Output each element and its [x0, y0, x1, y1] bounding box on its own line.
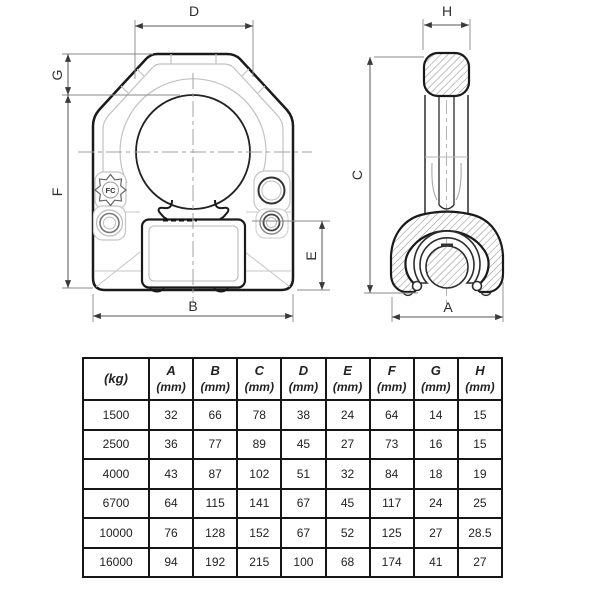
header-letter: B [194, 363, 236, 379]
ring-cross-section [424, 53, 469, 96]
dimension-h: H [423, 3, 470, 50]
table-cell: 87 [193, 459, 237, 489]
table-header-cell: G(mm) [414, 358, 458, 400]
table-cell: 43 [149, 459, 193, 489]
table-cell: 174 [370, 548, 414, 578]
table-cell: 16000 [83, 548, 149, 578]
right-boss-circles [254, 171, 290, 238]
table-cell: 77 [193, 430, 237, 460]
header-unit: (mm) [459, 380, 501, 395]
table-cell: 41 [414, 548, 458, 578]
table-cell: 84 [370, 459, 414, 489]
header-letter: (kg) [84, 371, 148, 387]
table-header-cell: D(mm) [281, 358, 325, 400]
table-cell: 24 [414, 489, 458, 519]
table-cell: 32 [149, 400, 193, 430]
table-cell: 24 [326, 400, 370, 430]
table-cell: 45 [326, 489, 370, 519]
table-cell: 128 [193, 518, 237, 548]
table-cell: 51 [281, 459, 325, 489]
table-header-cell: F(mm) [370, 358, 414, 400]
dimension-c: C [349, 57, 424, 293]
table-cell: 64 [370, 400, 414, 430]
table-cell: 64 [149, 489, 193, 519]
spec-table: (kg)A(mm)B(mm)C(mm)D(mm)E(mm)F(mm)G(mm)H… [82, 357, 503, 578]
table-cell: 115 [193, 489, 237, 519]
table-cell: 14 [414, 400, 458, 430]
dim-label-a: A [443, 299, 453, 315]
header-unit: (mm) [415, 380, 457, 395]
table-cell: 10000 [83, 518, 149, 548]
table-cell: 76 [149, 518, 193, 548]
table-cell: 215 [237, 548, 281, 578]
header-unit: (mm) [194, 380, 236, 395]
dim-label-d: D [189, 3, 199, 19]
left-boss-circles: FC [94, 172, 127, 240]
table-cell: 27 [414, 518, 458, 548]
table-cell: 52 [326, 518, 370, 548]
header-unit: (mm) [282, 380, 324, 395]
header-letter: A [150, 363, 192, 379]
table-header-row: (kg)A(mm)B(mm)C(mm)D(mm)E(mm)F(mm)G(mm)H… [83, 358, 502, 400]
table-cell: 32 [326, 459, 370, 489]
dimension-f: F [49, 95, 93, 288]
table-cell: 89 [237, 430, 281, 460]
table-row: 400043871025132841819 [83, 459, 502, 489]
table-cell: 78 [237, 400, 281, 430]
saddle-hook-left [413, 282, 422, 291]
table-cell: 36 [149, 430, 193, 460]
table-cell: 16 [414, 430, 458, 460]
table-cell: 19 [458, 459, 502, 489]
table-header-cell: A(mm) [149, 358, 193, 400]
header-unit: (mm) [327, 380, 369, 395]
table-row: 1600094192215100681744127 [83, 548, 502, 578]
table-header-cell: B(mm) [193, 358, 237, 400]
saddle-hook-right [473, 282, 482, 291]
table-cell: 15 [458, 400, 502, 430]
table-cell: 25 [458, 489, 502, 519]
table-header-cell: E(mm) [326, 358, 370, 400]
table-cell: 6700 [83, 489, 149, 519]
table-header-cell: (kg) [83, 358, 149, 400]
table-cell: 152 [237, 518, 281, 548]
header-letter: G [415, 363, 457, 379]
table-cell: 66 [193, 400, 237, 430]
table-row: 67006411514167451172425 [83, 489, 502, 519]
table-cell: 73 [370, 430, 414, 460]
header-unit: (mm) [150, 380, 192, 395]
table-cell: 4000 [83, 459, 149, 489]
table-cell: 45 [281, 430, 325, 460]
table-cell: 1500 [83, 400, 149, 430]
technical-drawing: FC D G [0, 0, 600, 345]
header-unit: (mm) [371, 380, 413, 395]
table-cell: 125 [370, 518, 414, 548]
table-row: 100007612815267521252728.5 [83, 518, 502, 548]
table-row: 25003677894527731615 [83, 430, 502, 460]
table-cell: 67 [281, 518, 325, 548]
table-cell: 15 [458, 430, 502, 460]
dim-label-h: H [442, 3, 452, 19]
table-cell: 94 [149, 548, 193, 578]
header-unit: (mm) [238, 380, 280, 395]
table-cell: 117 [370, 489, 414, 519]
header-letter: E [327, 363, 369, 379]
table-cell: 68 [326, 548, 370, 578]
lifting-point-spec-sheet: FC D G [0, 0, 600, 600]
table-cell: 100 [281, 548, 325, 578]
spec-table-body: 1500326678382464141525003677894527731615… [83, 400, 502, 577]
header-letter: F [371, 363, 413, 379]
dim-label-e: E [303, 251, 319, 260]
dim-label-c: C [349, 170, 365, 180]
side-view: H C A [349, 3, 503, 322]
table-cell: 38 [281, 400, 325, 430]
table-cell: 192 [193, 548, 237, 578]
header-letter: D [282, 363, 324, 379]
fc-logo-text: FC [106, 186, 117, 195]
table-cell: 27 [326, 430, 370, 460]
dim-label-g: G [49, 70, 65, 81]
table-cell: 2500 [83, 430, 149, 460]
table-cell: 141 [237, 489, 281, 519]
front-view: FC D G [49, 3, 330, 322]
table-cell: 18 [414, 459, 458, 489]
dim-label-f: F [49, 188, 65, 197]
table-cell: 28.5 [458, 518, 502, 548]
spec-table-head: (kg)A(mm)B(mm)C(mm)D(mm)E(mm)F(mm)G(mm)H… [83, 358, 502, 400]
table-row: 15003266783824641415 [83, 400, 502, 430]
dim-label-b: B [188, 298, 197, 314]
table-header-cell: C(mm) [237, 358, 281, 400]
header-letter: H [459, 363, 501, 379]
pin-cross-section [426, 246, 468, 288]
table-cell: 67 [281, 489, 325, 519]
dimension-b: B [93, 294, 293, 322]
table-cell: 27 [458, 548, 502, 578]
table-header-cell: H(mm) [458, 358, 502, 400]
header-letter: C [238, 363, 280, 379]
table-cell: 102 [237, 459, 281, 489]
